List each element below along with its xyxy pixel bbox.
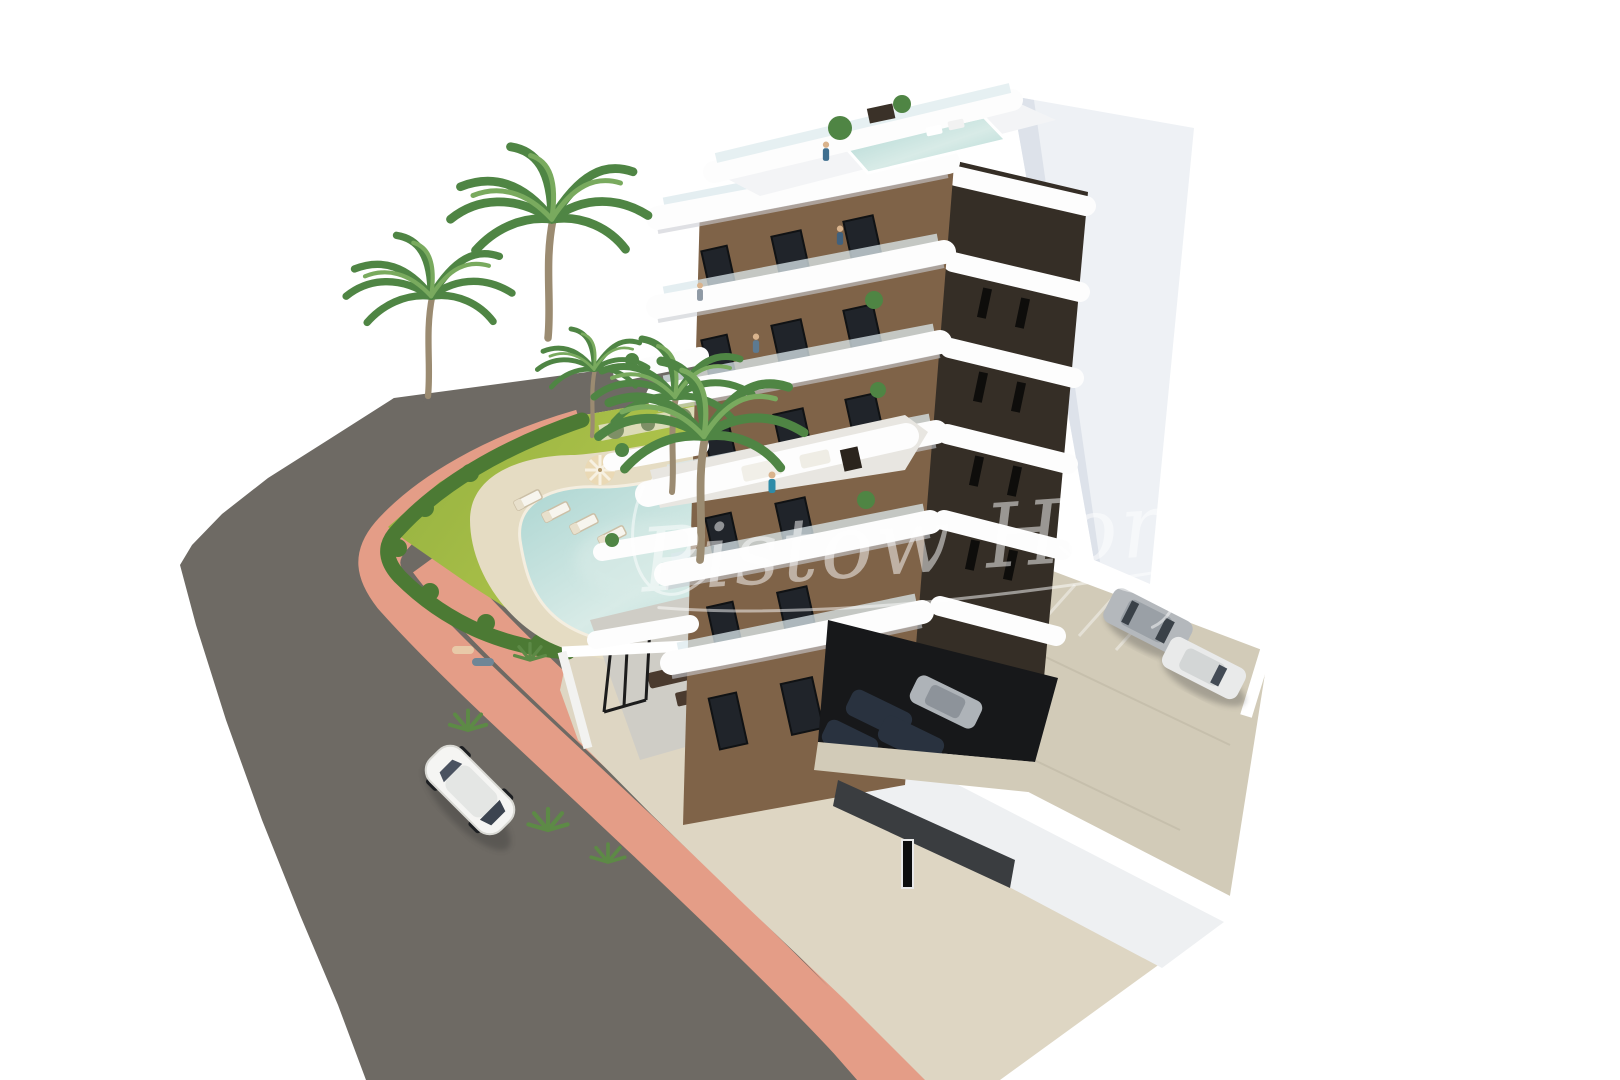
person-sunbathing-1 [452, 646, 474, 654]
person-sunbathing-2 [472, 658, 494, 666]
roof-planter-2 [893, 95, 911, 113]
ramp-door [902, 840, 913, 888]
person-balcony-1 [837, 226, 843, 245]
render-canvas: Pistow Honig [0, 0, 1620, 1080]
scene-svg: Pistow Honig [0, 0, 1620, 1080]
roof-planter-1 [828, 116, 852, 140]
person-terrace [769, 472, 776, 494]
person-rooftop [823, 142, 829, 161]
person-balcony-2 [753, 334, 759, 353]
person-balcony-3 [697, 283, 703, 301]
